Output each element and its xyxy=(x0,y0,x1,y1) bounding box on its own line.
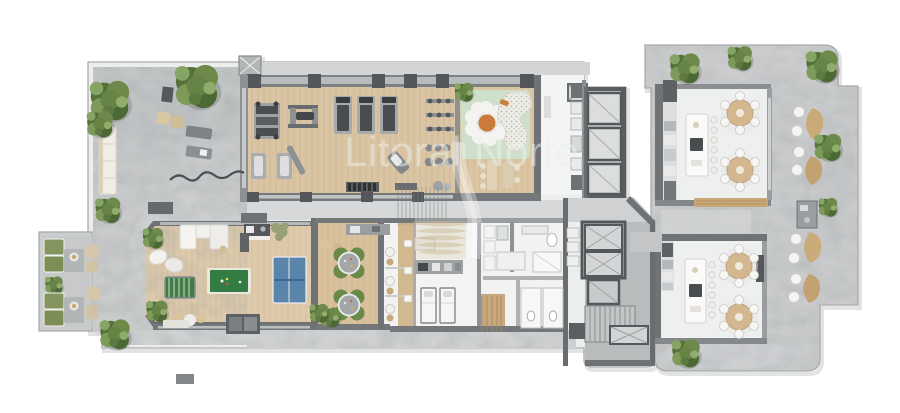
svg-text:Litoral Norte: Litoral Norte xyxy=(344,128,579,175)
